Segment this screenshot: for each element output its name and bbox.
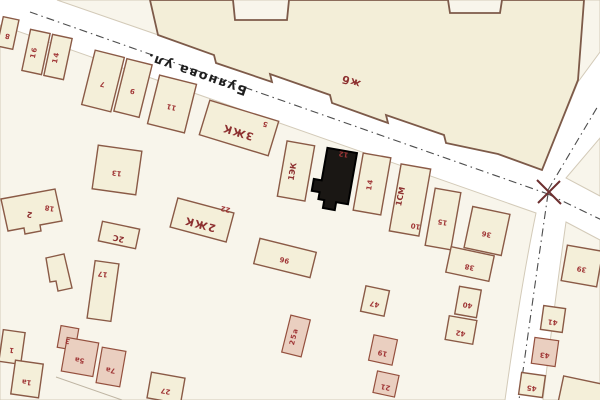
building-number: 7а	[105, 365, 116, 375]
building-number: 12	[338, 149, 349, 159]
building-number: 39	[576, 264, 587, 274]
building-number: 18	[44, 203, 55, 213]
building-number: 5а	[74, 355, 85, 365]
building-number: 17	[97, 269, 108, 278]
building-number: 1а	[21, 377, 32, 386]
building-number: 10	[410, 221, 421, 231]
building-number: 43	[539, 350, 550, 359]
building-number: 15	[437, 217, 448, 227]
city-map: жб Буянова ул. 3ЖК 2ЖК 1ЭК 1СМ 2С 2 8 16	[0, 0, 600, 400]
building-number: 13	[111, 168, 122, 177]
building-number: 45	[526, 383, 537, 392]
building-number: 40	[462, 300, 473, 310]
intersection-cross-mark	[537, 180, 561, 204]
map-canvas[interactable]: жб Буянова ул. 3ЖК 2ЖК 1ЭК 1СМ 2С 2 8 16	[0, 0, 600, 400]
building-number: 42	[455, 328, 466, 338]
block-east-sliver	[566, 138, 600, 196]
building-number: 27	[160, 386, 171, 396]
building-number: 41	[547, 317, 558, 326]
